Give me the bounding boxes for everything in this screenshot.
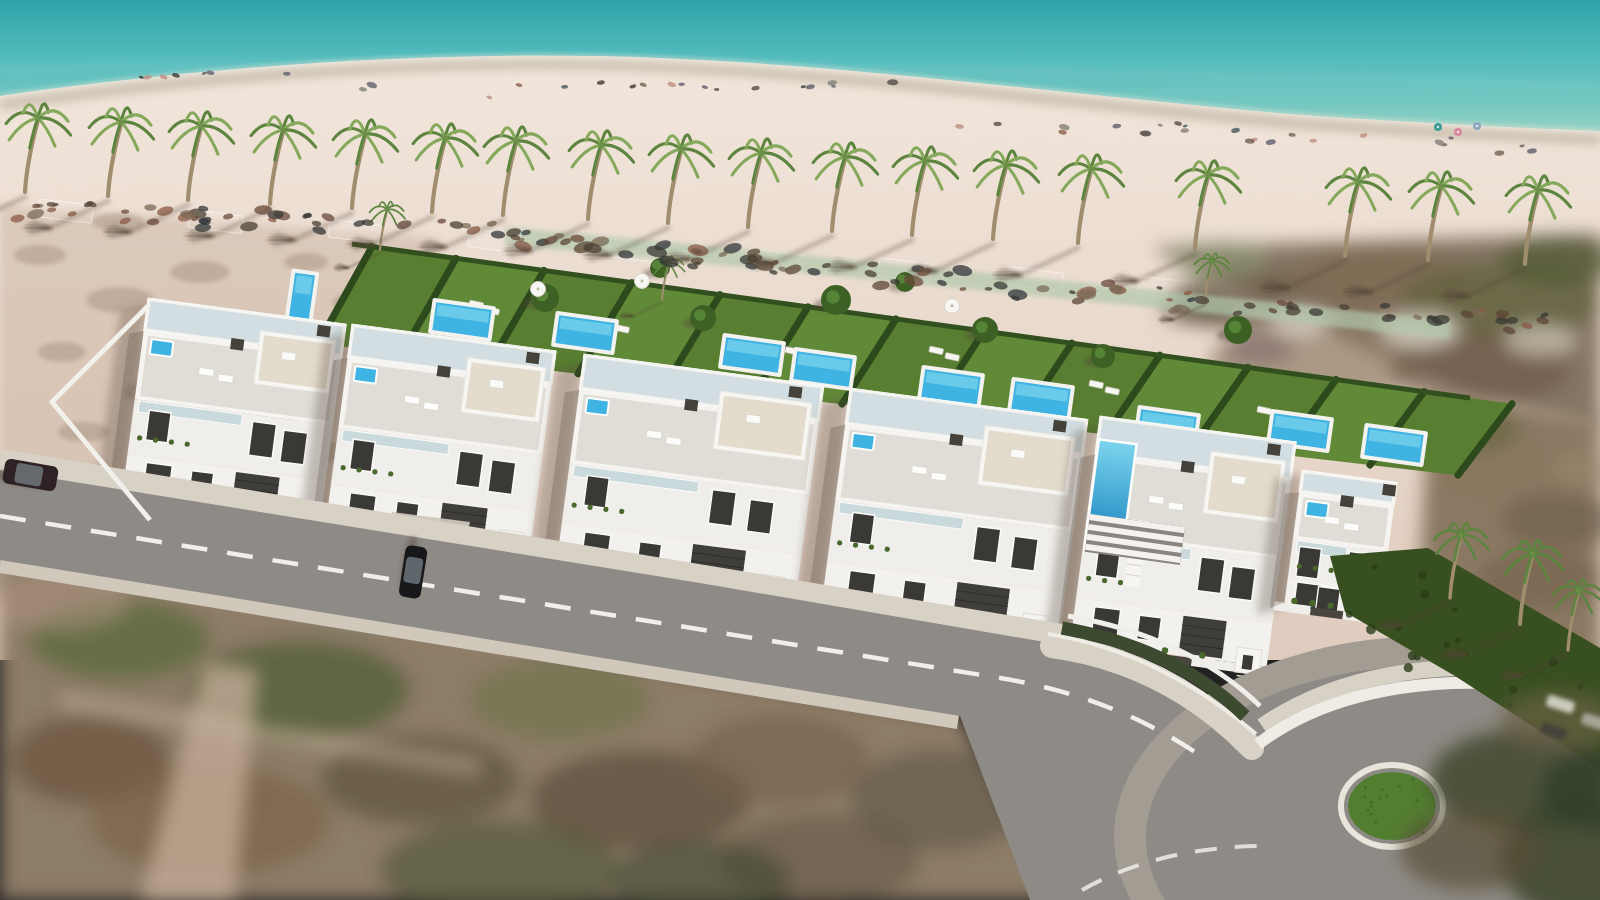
window (973, 526, 1001, 563)
garden-tree-highlight (694, 309, 706, 321)
palm-crown (758, 150, 763, 155)
beach-umbrella-top (1437, 126, 1439, 128)
palm-crown (1438, 183, 1443, 188)
palm-crown (1088, 166, 1093, 171)
palm-crown (598, 142, 603, 147)
slope-shrub (1404, 663, 1413, 672)
roundabout-grass-tuft (1363, 795, 1366, 798)
chimney (1340, 495, 1354, 508)
chimney (1053, 420, 1067, 433)
slope-shrub (1418, 571, 1427, 580)
slope-shrub (1452, 607, 1457, 612)
terrace-sofa (746, 414, 761, 424)
chimney (230, 338, 244, 351)
lot-scrub-patch (38, 342, 86, 362)
palm-crown (1211, 260, 1214, 263)
entrance-door (1242, 655, 1254, 670)
slope-shrub (1366, 625, 1376, 635)
palm-crown (35, 115, 40, 120)
roundabout-grass-tuft (1366, 809, 1369, 812)
chimney (684, 399, 698, 412)
palm-crown (1576, 589, 1580, 593)
scene-canvas (0, 0, 1600, 900)
window (1296, 546, 1322, 579)
corner-veg-blob (1400, 810, 1540, 890)
palm-crown (362, 131, 367, 136)
roundabout-grass-tuft (1374, 820, 1377, 823)
pool-water-highlight (294, 275, 312, 295)
roundabout-grass-tuft (1415, 799, 1418, 802)
beach-figure (1310, 139, 1317, 143)
palm-crown (386, 208, 389, 211)
roundabout-grass-tuft (1370, 812, 1373, 815)
rooftop-jacuzzi (1305, 501, 1329, 519)
parasol-pole (537, 288, 540, 291)
palm-crown (280, 127, 285, 132)
window (746, 499, 774, 534)
beach-umbrella-top (1457, 131, 1459, 133)
slope-shrub (1420, 590, 1429, 599)
window (488, 460, 516, 495)
palm-crown (1355, 179, 1360, 184)
slope-shrub (1509, 686, 1517, 694)
palm-crown (198, 123, 203, 128)
terrace-sofa (489, 379, 504, 389)
palm-crown (842, 154, 847, 159)
chimney (1181, 461, 1195, 474)
rooftop-jacuzzi (851, 433, 875, 451)
parasol-pole (951, 305, 954, 308)
beach-debris (985, 287, 992, 291)
lot-scrub-patch (284, 253, 328, 271)
garden-tree-highlight (826, 290, 840, 304)
roundabout-grass-tuft (1381, 788, 1384, 791)
window (145, 410, 171, 443)
slope-shrub (1346, 611, 1353, 618)
lot-scrub-patch (170, 261, 230, 283)
window (456, 451, 484, 488)
palm-crown (1530, 551, 1535, 556)
palm-crown (678, 146, 683, 151)
window (708, 490, 736, 527)
existing-resort-terrain-blob (1504, 324, 1576, 356)
slope-shrub (1577, 684, 1583, 690)
chimney (317, 325, 331, 338)
window (849, 512, 875, 545)
beach-figure (678, 83, 684, 86)
chimney (1267, 443, 1281, 456)
tower-terrace-deck (1208, 456, 1282, 518)
chimney (526, 352, 540, 365)
tower-terrace-deck (982, 430, 1071, 491)
beachfront-villas-aerial-render (0, 0, 1600, 900)
palm-crown (442, 135, 447, 140)
window (1197, 557, 1225, 594)
lot-scrub-patch (14, 245, 66, 265)
tower-terrace-deck (465, 362, 541, 417)
palm-crown (1459, 533, 1463, 537)
beach-umbrella-top (1476, 125, 1478, 127)
palm-crown (1205, 172, 1210, 177)
roundabout-grass-tuft (1379, 797, 1382, 800)
garden-tree-highlight (976, 321, 988, 333)
chimney (437, 365, 451, 378)
parasol-pole (641, 280, 644, 283)
rooftop-jacuzzi (585, 398, 609, 416)
palm-crown (1535, 187, 1540, 192)
roundabout-grass-tuft (1370, 801, 1373, 804)
window (280, 430, 308, 465)
chimney (949, 433, 963, 446)
slope-shrub (1372, 565, 1377, 570)
roundabout-grass-tuft (1370, 805, 1373, 808)
roundabout-grass-tuft (1398, 785, 1401, 788)
window (1228, 566, 1256, 601)
scrubland-terrain-blob (690, 715, 870, 805)
window (350, 439, 376, 472)
chimney (788, 386, 802, 399)
roundabout-grass-tuft (1364, 786, 1367, 789)
roundabout-grass-tuft (1411, 778, 1414, 781)
roundabout-grass-tuft (1385, 795, 1388, 798)
beach-figure (283, 72, 290, 76)
terrace-sofa (281, 351, 296, 361)
slope-shrub (1455, 638, 1461, 644)
palm-crown (118, 119, 123, 124)
window (248, 422, 276, 459)
window (584, 476, 610, 509)
beach-debris (1036, 285, 1049, 292)
palm-crown (922, 158, 927, 163)
terrace-sofa (1231, 475, 1246, 485)
garden-tree-highlight (1095, 348, 1106, 359)
chimney (1382, 484, 1396, 497)
window (1010, 536, 1038, 571)
slope-shrub (1414, 654, 1421, 661)
rooftop-jacuzzi (354, 366, 378, 384)
rooftop-jacuzzi (150, 339, 174, 357)
terrace-sofa (1010, 449, 1025, 459)
palm-crown (513, 138, 518, 143)
palm-crown (1003, 162, 1008, 167)
garden-tree-highlight (1229, 321, 1242, 334)
